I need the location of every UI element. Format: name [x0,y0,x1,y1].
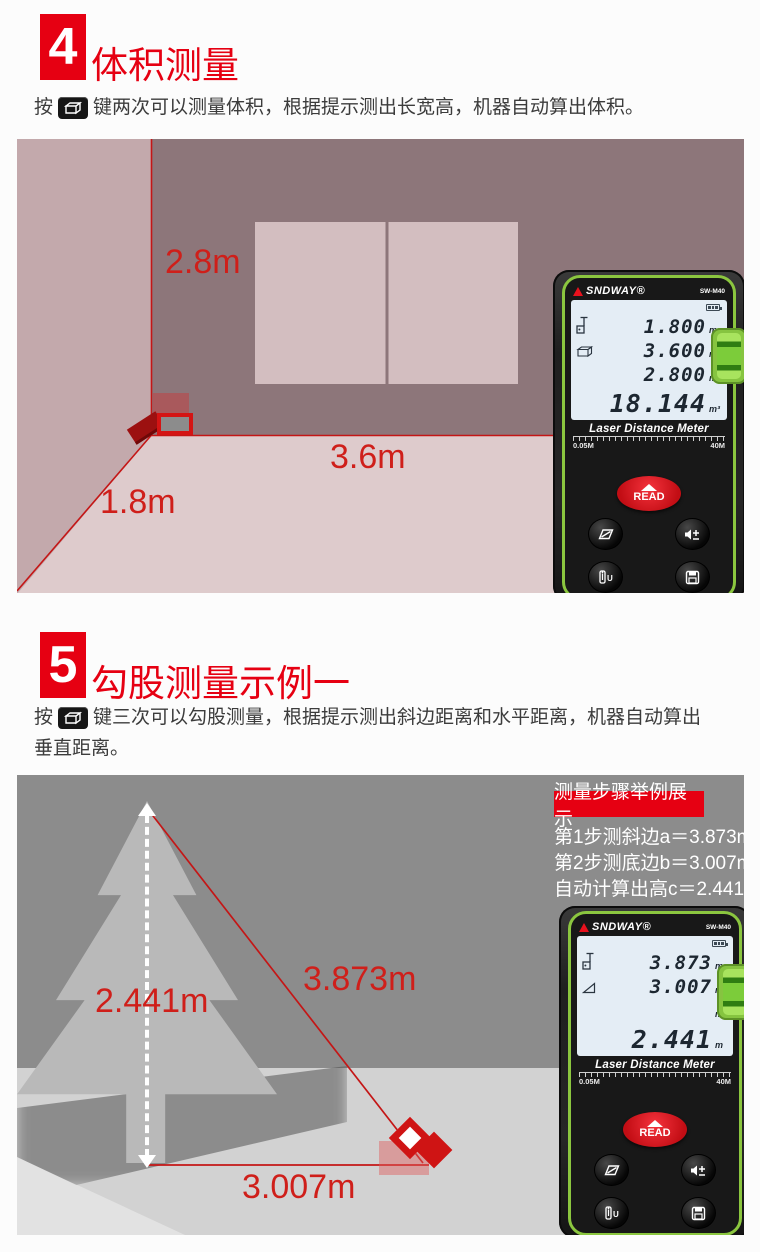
step-number: 5 [49,635,78,695]
lcd-row-length: 1.800 m [576,313,722,337]
area-measure-button [594,1154,629,1186]
area-measure-button [588,518,623,550]
lcd-row-height: 2.800 m [576,361,722,385]
info-box-steps: 第1步测斜边a＝3.873m 第2步测底边b＝3.007m 自动计算出高c＝2.… [554,825,744,903]
arrow-up-icon [138,803,156,816]
svg-text:U: U [607,574,613,583]
height-dim-label: 2.441m [95,983,208,1019]
info-step-1: 第1步测斜边a＝3.873m [554,825,744,851]
battery-icon [712,940,726,947]
bubble-level [711,328,744,384]
step-4-badge: 4 [40,14,86,80]
cuboid-icon [576,345,598,361]
lcd-row-result: 2.441 m [582,1021,728,1052]
sndway-logo-icon [579,923,589,932]
pythagoras-key-icon [58,707,88,729]
model-label: SW-M40 [706,924,731,931]
desc-text: 键两次可以测量体积，根据提示测出长宽高，机器自动算出体积。 [93,92,644,123]
arrow-down-icon [138,1155,156,1168]
lcd-display: 3.873 m 3.007 m [577,936,733,1056]
width-dim-label: 3.6m [330,439,406,475]
laser-distance-meter: SNDWAY® SW-M40 [553,270,744,593]
unit-reference-button: U [594,1197,629,1229]
laser-distance-meter: SNDWAY® SW-M40 [559,906,744,1235]
lcd-row-width: 3.600 m [576,337,722,361]
depth-dim-label: 1.8m [100,484,176,520]
hypotenuse-dim-label: 3.873m [303,961,416,997]
svg-text:U: U [613,1210,619,1219]
info-step-2: 第2步测底边b＝3.007m [554,851,744,877]
height-dim-label: 2.8m [165,244,241,280]
right-triangle-icon [582,982,604,997]
desc-text-line2: 垂直距离。 [34,733,744,764]
info-box-title: 测量步骤举例展示 [554,791,704,817]
info-step-3: 自动计算出高c＝2.441m [554,877,744,903]
meter-caption: Laser Distance Meter [571,1059,739,1071]
range-row: 0.05M 40M [571,1077,739,1086]
lcd-row-base: 3.007 m [582,973,728,997]
read-button: READ [617,476,681,511]
product-instruction-page: 4 体积测量 按 键两次可以测量体积，根据提示测出长宽高，机器自动算出体积。 2… [0,0,760,1252]
speaker-plus-minus-button [681,1154,716,1186]
base-dim-label: 3.007m [242,1169,355,1205]
laser-target-icon [576,316,598,337]
model-label: SW-M40 [700,288,725,295]
step-number: 4 [49,17,78,77]
meter-caption: Laser Distance Meter [565,423,733,435]
volume-measure-illustration: 2.8m 3.6m 1.8m SNDWAY® SW-M40 [17,139,744,593]
save-button [681,1197,716,1229]
laser-target-icon [582,952,604,973]
desc-prefix: 按 [34,92,53,123]
brand-label: SNDWAY® [586,285,697,297]
lcd-display: 1.800 m 3.600 m 2.800 [571,300,727,420]
section-5-description: 按 键三次可以勾股测量，根据提示测出斜边距离和水平距离，机器自动算出 垂直距离。 [34,702,744,764]
read-triangle-icon [641,484,657,491]
brand-label: SNDWAY® [592,921,703,933]
room-window [255,222,518,384]
mini-device-front [157,413,193,435]
unit-reference-button: U [588,561,623,593]
desc-prefix: 按 [34,702,53,733]
battery-icon [706,304,720,311]
step-5-badge: 5 [40,632,86,698]
read-triangle-icon [647,1120,663,1127]
read-button: READ [623,1112,687,1147]
section-5-title: 勾股测量示例一 [91,664,350,704]
lcd-row-blank: m [582,997,728,1021]
range-row: 0.05M 40M [565,441,733,450]
desc-text: 键三次可以勾股测量，根据提示测出斜边距离和水平距离，机器自动算出 [93,702,701,733]
pythagoras-measure-illustration: 2.441m 3.873m 3.007m 测量步骤举例展示 第1步测斜边a＝3.… [17,775,744,1235]
save-button [675,561,710,593]
sndway-logo-icon [573,287,583,296]
section-4-title: 体积测量 [91,46,239,86]
section-4-description: 按 键两次可以测量体积，根据提示测出长宽高，机器自动算出体积。 [34,92,744,123]
lcd-row-hypotenuse: 3.873 m [582,949,728,973]
lcd-row-result: 18.144 m³ [576,385,722,416]
speaker-plus-minus-button [675,518,710,550]
volume-key-icon [58,97,88,119]
bubble-level [717,964,744,1020]
